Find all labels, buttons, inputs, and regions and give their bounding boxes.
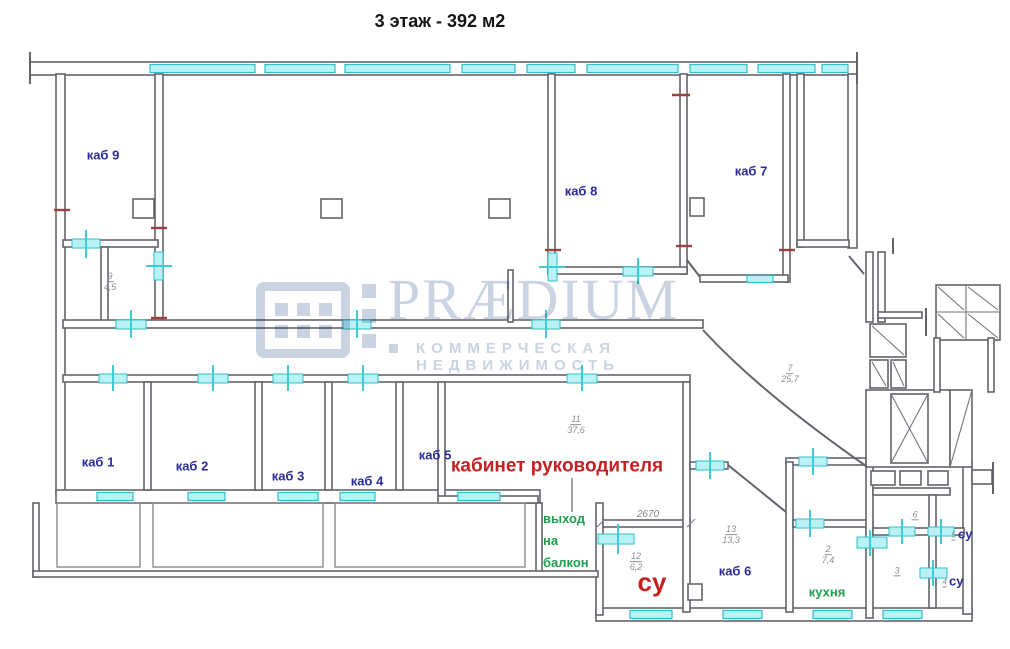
- director-office-label: кабинет руководителя: [451, 457, 663, 476]
- room-number-12: 126,2: [630, 551, 643, 573]
- floor-plan-drawing: [0, 0, 1010, 649]
- walls: [30, 62, 1000, 621]
- room-label-kab8: каб 8: [565, 185, 598, 198]
- room-number-9: 94,5: [104, 271, 117, 293]
- room-number-3: 3: [893, 565, 900, 576]
- room-number-11: 1137,6: [567, 414, 585, 436]
- room-label-kab5: каб 5: [419, 449, 452, 462]
- door-swing: [849, 256, 864, 274]
- balcony-exit-line2: на: [543, 530, 589, 552]
- su-red-label: су: [638, 569, 667, 595]
- curved-wall: [703, 330, 866, 466]
- su5-label: 5 су: [952, 528, 973, 541]
- room-number-7: 725,7: [781, 363, 799, 385]
- room-label-kab9: каб 9: [87, 149, 120, 162]
- balcony-exit-label: выход на балкон: [543, 508, 589, 574]
- dimension-2670: 2670: [637, 510, 659, 520]
- balcony-exit-line3: балкон: [543, 552, 589, 574]
- room-number-5: 5: [952, 532, 956, 541]
- room-number-2: 27,4: [822, 544, 835, 566]
- su4-label: 4 су: [943, 575, 964, 588]
- su5-text: су: [958, 528, 972, 541]
- room-label-kab7: каб 7: [735, 165, 768, 178]
- balcony-exit-line1: выход: [543, 508, 589, 530]
- room-label-kab1: каб 1: [82, 456, 115, 469]
- room-number-4: 4: [943, 579, 947, 588]
- page-title: 3 этаж - 392 м2: [375, 12, 506, 30]
- room-label-kab6: каб 6: [719, 565, 752, 578]
- kitchen-label: кухня: [809, 586, 846, 599]
- room-number-13: 1313,3: [722, 524, 740, 546]
- room-label-kab3: каб 3: [272, 470, 305, 483]
- floor-plan-page: PRÆDIUM КОММЕРЧЕСКАЯ НЕДВИЖИМОСТЬ 3 этаж…: [0, 0, 1010, 649]
- room-label-kab4: каб 4: [351, 475, 384, 488]
- room-label-kab2: каб 2: [176, 460, 209, 473]
- room-number-6: 6: [911, 509, 918, 520]
- balcony-sections: [57, 503, 525, 567]
- su4-text: су: [949, 575, 963, 588]
